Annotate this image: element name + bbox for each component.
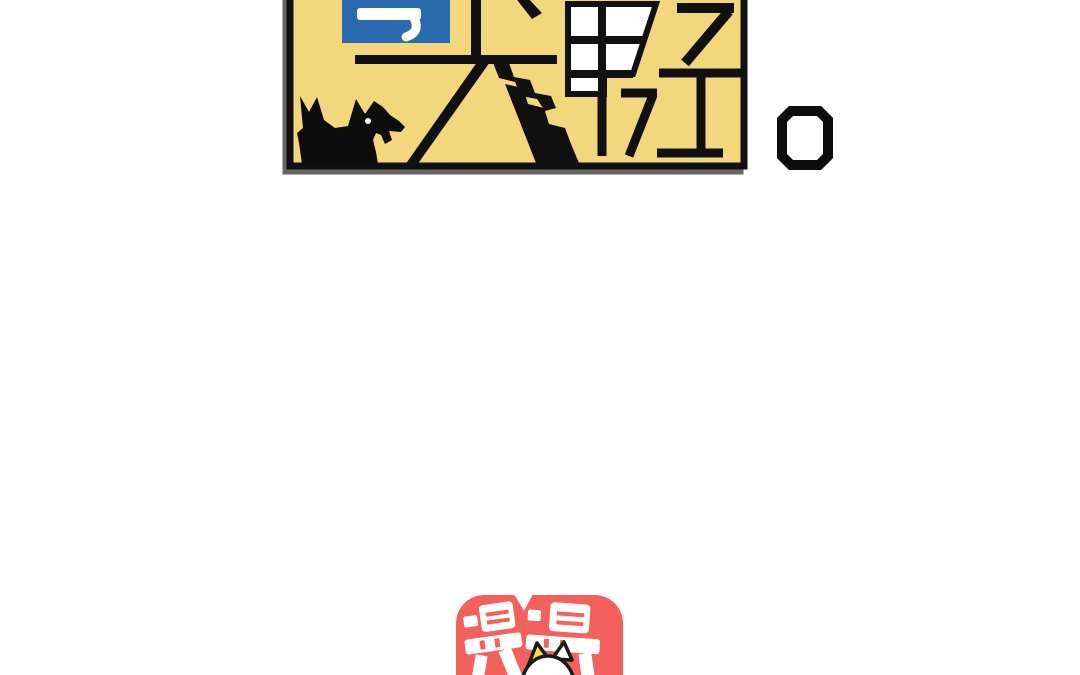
quan-crossbar bbox=[355, 55, 557, 64]
title-logo-banner bbox=[290, 0, 744, 166]
square-fullstop-mark bbox=[782, 111, 828, 165]
glyph-block bbox=[549, 602, 591, 634]
glyph-tick bbox=[544, 639, 550, 648]
blue-char-tile bbox=[342, 0, 450, 43]
comic-page: 犬野 。 与 漫漫 bbox=[0, 0, 1080, 675]
glyph-dot bbox=[527, 609, 541, 621]
blue-tile bbox=[342, 0, 450, 43]
comic-artwork bbox=[0, 0, 1080, 675]
glyph-dot bbox=[463, 615, 478, 628]
app-icon-watermark bbox=[456, 594, 623, 675]
glyph-block bbox=[478, 601, 515, 632]
dog-eye bbox=[365, 118, 371, 124]
quan-stem bbox=[471, 0, 481, 60]
